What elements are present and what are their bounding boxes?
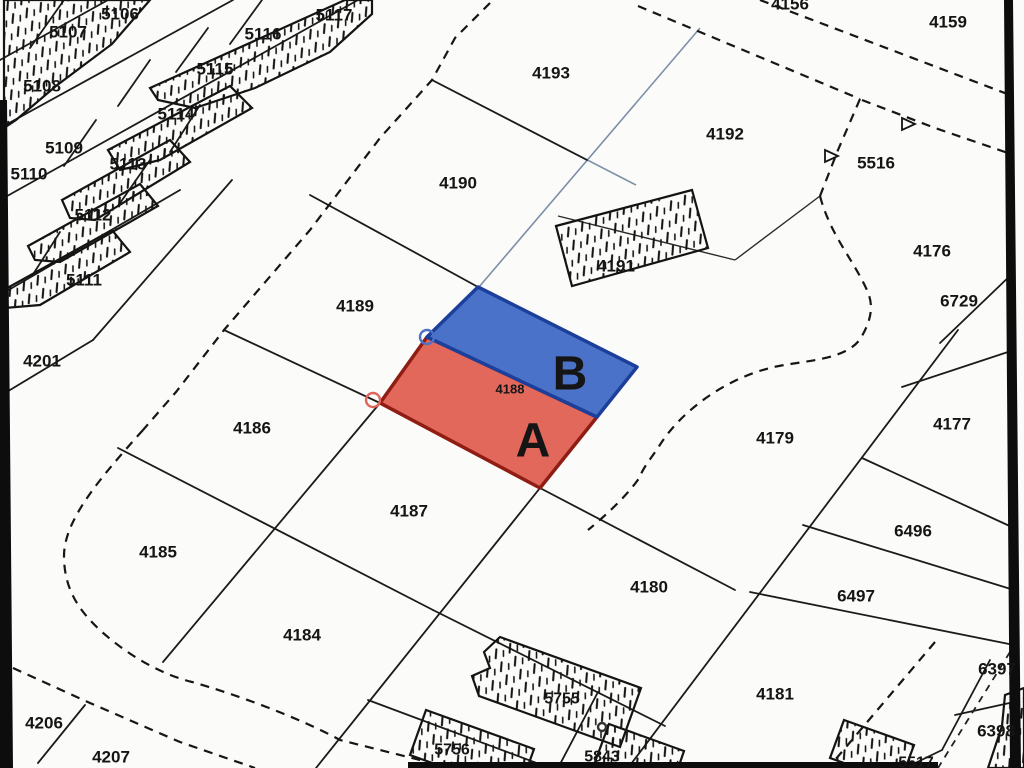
parcel-label-5107: 5107: [49, 23, 87, 42]
parcel-label-4201: 4201: [23, 352, 61, 371]
parcel-label-4180: 4180: [630, 578, 668, 597]
parcel-label-5110: 5110: [11, 165, 48, 184]
parcel-label-4181: 4181: [756, 685, 794, 704]
parcel-label-5755: 5755: [544, 691, 580, 708]
parcel-label-6729: 6729: [940, 292, 978, 311]
parcel-label-5516: 5516: [857, 154, 895, 173]
parcel-label-4176: 4176: [913, 242, 951, 261]
parcel-label-4179: 4179: [756, 429, 794, 448]
bottom-border-bar: [408, 762, 938, 768]
parcel-label-4184: 4184: [283, 626, 321, 645]
parcel-label-4186: 4186: [233, 419, 271, 438]
parcel-label-5116: 5116: [245, 25, 282, 44]
parcel-label-5517: 5517: [898, 755, 934, 768]
parcel-label-5756: 5756: [434, 742, 470, 759]
parcel-label-6497: 6497: [837, 587, 875, 606]
parcel-label-5114: 5114: [158, 105, 195, 124]
buildings-center-bottom: [410, 190, 1024, 768]
parcel-label-6496: 6496: [894, 522, 932, 541]
parcel-label-5111: 5111: [66, 271, 102, 290]
parcel-label-A: A: [516, 415, 551, 468]
parcel-lines-right: [628, 272, 1014, 768]
parcel-label-4185: 4185: [139, 543, 177, 562]
parcel-label-4159: 4159: [929, 13, 967, 32]
parcel-label-5106: 5106: [101, 5, 139, 24]
right-border-bar: [1004, 0, 1021, 768]
parcel-label-4206: 4206: [25, 714, 63, 733]
parcel-label-5112: 5112: [75, 206, 112, 225]
parcel-label-4193: 4193: [532, 64, 570, 83]
cadastral-map: 5106510751085115511651175114510951135110…: [0, 0, 1024, 768]
parcel-label-4207: 4207: [92, 748, 130, 767]
parcel-label-5117: 5117: [316, 6, 353, 25]
parcel-label-6397: 6397: [978, 660, 1016, 679]
parcel-label-B: B: [553, 348, 588, 401]
parcel-label-5843: 5843: [584, 749, 620, 766]
parcel-label-4191: 4191: [597, 257, 635, 276]
building-5756: [410, 710, 534, 768]
parcel-label-6398: 6398: [977, 722, 1015, 741]
left-border-bar: [0, 100, 13, 768]
parcel-label-5108: 5108: [23, 77, 61, 96]
parcel-label-5109: 5109: [45, 139, 83, 158]
parcel-label-4188: 4188: [496, 382, 525, 397]
parcel-label-5115: 5115: [197, 60, 234, 79]
parcel-label-4187: 4187: [390, 502, 428, 521]
parcel-label-4190: 4190: [439, 174, 477, 193]
parcel-label-4192: 4192: [706, 125, 744, 144]
benchmark-triangle-5516-west: [825, 150, 838, 162]
parcel-label-5113: 5113: [110, 155, 147, 174]
parcel-label-4156: 4156: [771, 0, 809, 14]
parcel-label-4177: 4177: [933, 415, 971, 434]
parcel-label-4189: 4189: [336, 297, 374, 316]
parcel-map-svg: 5106510751085115511651175114510951135110…: [0, 0, 1024, 768]
